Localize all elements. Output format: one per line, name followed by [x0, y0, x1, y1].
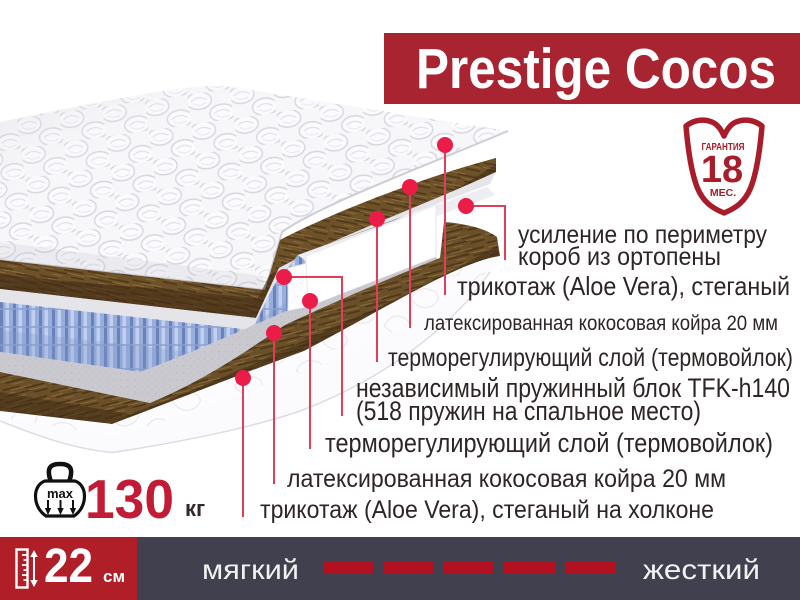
svg-text:короб из ортопены: короб из ортопены	[518, 243, 721, 271]
svg-text:жесткий: жесткий	[643, 554, 760, 585]
svg-text:(518 пружин на спальное место): (518 пружин на спальное место)	[356, 396, 701, 426]
svg-text:130: 130	[85, 468, 174, 530]
svg-text:мягкий: мягкий	[202, 554, 299, 585]
svg-text:трикотаж (Aloe Vera), стеганый: трикотаж (Aloe Vera), стеганый	[457, 271, 790, 301]
svg-text:трикотаж (Aloe Vera), стеганый: трикотаж (Aloe Vera), стеганый на холкон…	[260, 496, 714, 524]
svg-text:кг: кг	[185, 496, 205, 521]
svg-text:терморегулирующий слой (термов: терморегулирующий слой (термовойлок)	[388, 344, 793, 372]
svg-text:18: 18	[701, 149, 743, 191]
svg-text:Prestige Cocos: Prestige Cocos	[416, 37, 776, 101]
svg-text:22: 22	[44, 540, 93, 593]
svg-text:см: см	[103, 567, 125, 586]
svg-text:терморегулирующий слой (термов: терморегулирующий слой (термовойлок)	[325, 428, 773, 458]
svg-text:латексированная кокосовая койр: латексированная кокосовая койра 20 мм	[424, 312, 778, 335]
svg-text:max: max	[47, 486, 74, 501]
svg-text:латексированная кокосовая койр: латексированная кокосовая койра 20 мм	[287, 465, 726, 493]
svg-text:МЕС.: МЕС.	[710, 187, 736, 199]
